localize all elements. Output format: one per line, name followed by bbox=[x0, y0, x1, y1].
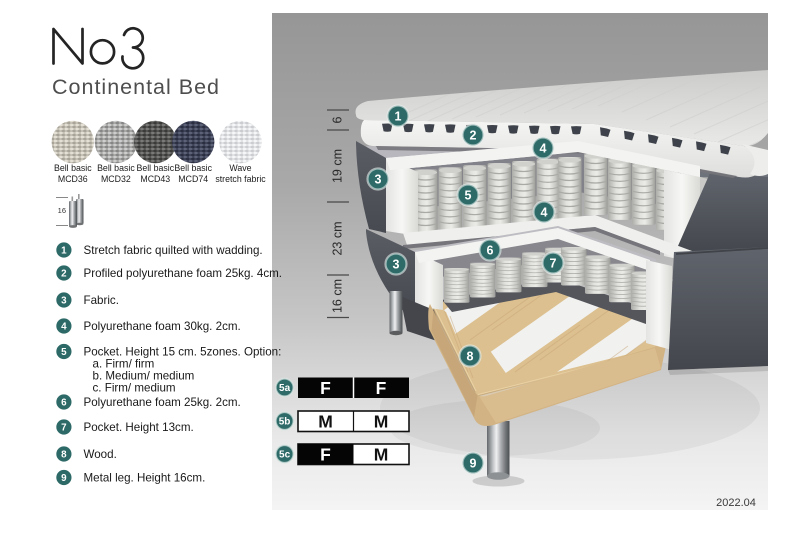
svg-text:Pocket. Height 13cm.: Pocket. Height 13cm. bbox=[84, 421, 194, 434]
svg-text:5c: 5c bbox=[279, 450, 291, 461]
svg-text:MCD43: MCD43 bbox=[140, 174, 170, 184]
svg-text:3: 3 bbox=[393, 258, 400, 272]
svg-text:MCD32: MCD32 bbox=[101, 174, 131, 184]
svg-text:3: 3 bbox=[375, 173, 382, 187]
svg-text:6: 6 bbox=[330, 116, 344, 123]
svg-text:2022.04: 2022.04 bbox=[716, 497, 756, 509]
svg-text:F: F bbox=[320, 378, 331, 398]
svg-text:Bell basic: Bell basic bbox=[174, 163, 212, 173]
svg-text:Wave: Wave bbox=[229, 163, 251, 173]
svg-text:7: 7 bbox=[61, 423, 67, 434]
svg-text:stretch fabric: stretch fabric bbox=[215, 174, 266, 184]
svg-text:4: 4 bbox=[61, 322, 67, 333]
svg-text:MCD74: MCD74 bbox=[178, 174, 208, 184]
svg-text:8: 8 bbox=[467, 350, 474, 364]
svg-text:Bell basic: Bell basic bbox=[136, 163, 174, 173]
svg-text:2: 2 bbox=[470, 129, 477, 143]
svg-text:3: 3 bbox=[61, 296, 67, 307]
svg-text:2: 2 bbox=[61, 269, 67, 280]
svg-text:5a: 5a bbox=[279, 383, 291, 394]
svg-text:Fabric.: Fabric. bbox=[84, 294, 119, 307]
svg-text:23 cm: 23 cm bbox=[330, 221, 344, 255]
svg-text:9: 9 bbox=[61, 473, 67, 484]
svg-text:5: 5 bbox=[465, 189, 472, 203]
svg-text:F: F bbox=[376, 378, 387, 398]
svg-text:8: 8 bbox=[61, 450, 67, 461]
svg-text:16 cm: 16 cm bbox=[330, 279, 344, 313]
svg-text:Wood.: Wood. bbox=[84, 448, 117, 461]
svg-text:6: 6 bbox=[61, 398, 67, 409]
svg-text:Polyurethane foam 25kg. 2cm.: Polyurethane foam 25kg. 2cm. bbox=[84, 396, 241, 409]
svg-text:Profiled polyurethane foam 25k: Profiled polyurethane foam 25kg. 4cm. bbox=[84, 267, 283, 280]
svg-text:Continental Bed: Continental Bed bbox=[52, 75, 220, 99]
svg-text:Polyurethane foam 30kg. 2cm.: Polyurethane foam 30kg. 2cm. bbox=[84, 320, 241, 333]
svg-text:5: 5 bbox=[61, 347, 67, 358]
svg-text:M: M bbox=[374, 412, 389, 432]
svg-text:4: 4 bbox=[541, 206, 548, 220]
svg-text:16: 16 bbox=[58, 206, 66, 215]
svg-text:MCD36: MCD36 bbox=[58, 174, 88, 184]
svg-text:1: 1 bbox=[61, 246, 67, 257]
svg-text:c. Firm/ medium: c. Firm/ medium bbox=[93, 382, 176, 395]
svg-text:M: M bbox=[374, 445, 389, 465]
svg-text:5b: 5b bbox=[279, 417, 291, 428]
svg-text:6: 6 bbox=[487, 244, 494, 258]
svg-text:Stretch fabric quilted with wa: Stretch fabric quilted with wadding. bbox=[84, 244, 263, 257]
svg-text:Bell basic: Bell basic bbox=[97, 163, 135, 173]
svg-text:4: 4 bbox=[540, 142, 547, 156]
svg-text:Bell basic: Bell basic bbox=[54, 163, 92, 173]
svg-text:7: 7 bbox=[550, 257, 557, 271]
svg-text:19 cm: 19 cm bbox=[330, 149, 344, 183]
svg-text:9: 9 bbox=[470, 457, 477, 471]
svg-text:M: M bbox=[318, 412, 333, 432]
svg-text:Metal leg. Height 16cm.: Metal leg. Height 16cm. bbox=[84, 472, 206, 485]
svg-text:F: F bbox=[320, 445, 331, 465]
svg-text:1: 1 bbox=[395, 110, 402, 124]
